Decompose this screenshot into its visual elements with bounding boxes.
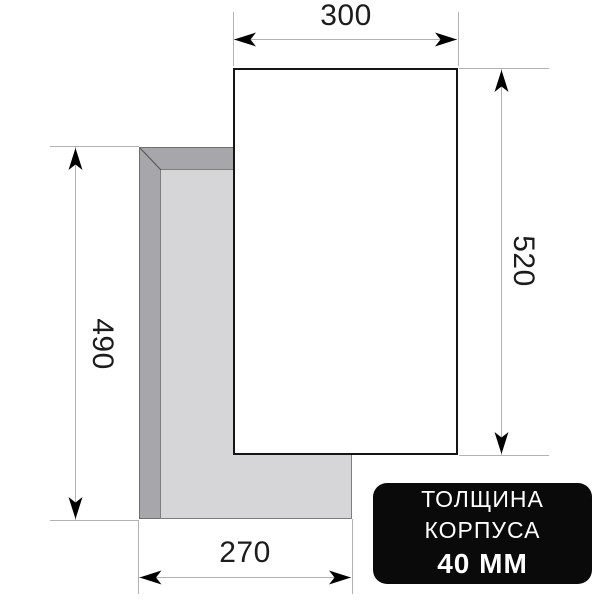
dimension-diagram: 300 520 490 270 ТОЛЩИНА КОРПУСА 40 ММ <box>0 0 600 600</box>
arrowhead-down-icon <box>495 432 509 454</box>
hob-top-panel <box>233 68 458 455</box>
arrowhead-left-icon <box>234 33 256 47</box>
dim-label-right-depth: 520 <box>506 235 540 287</box>
arrowhead-up-icon <box>69 148 83 170</box>
dim-label-left-depth: 490 <box>85 318 119 370</box>
dim-label-top-width: 300 <box>320 0 372 33</box>
body-thickness-badge: ТОЛЩИНА КОРПУСА 40 ММ <box>373 483 592 584</box>
arrowhead-up-icon <box>495 70 509 92</box>
arrowhead-right-icon <box>329 571 351 585</box>
badge-line-1: ТОЛЩИНА <box>421 486 544 514</box>
arrowhead-right-icon <box>435 33 457 47</box>
badge-line-3: 40 ММ <box>437 547 528 581</box>
badge-line-2: КОРПУСА <box>425 517 541 545</box>
arrowhead-down-icon <box>69 497 83 519</box>
dim-label-bottom-width: 270 <box>219 536 271 570</box>
arrowhead-left-icon <box>140 571 162 585</box>
